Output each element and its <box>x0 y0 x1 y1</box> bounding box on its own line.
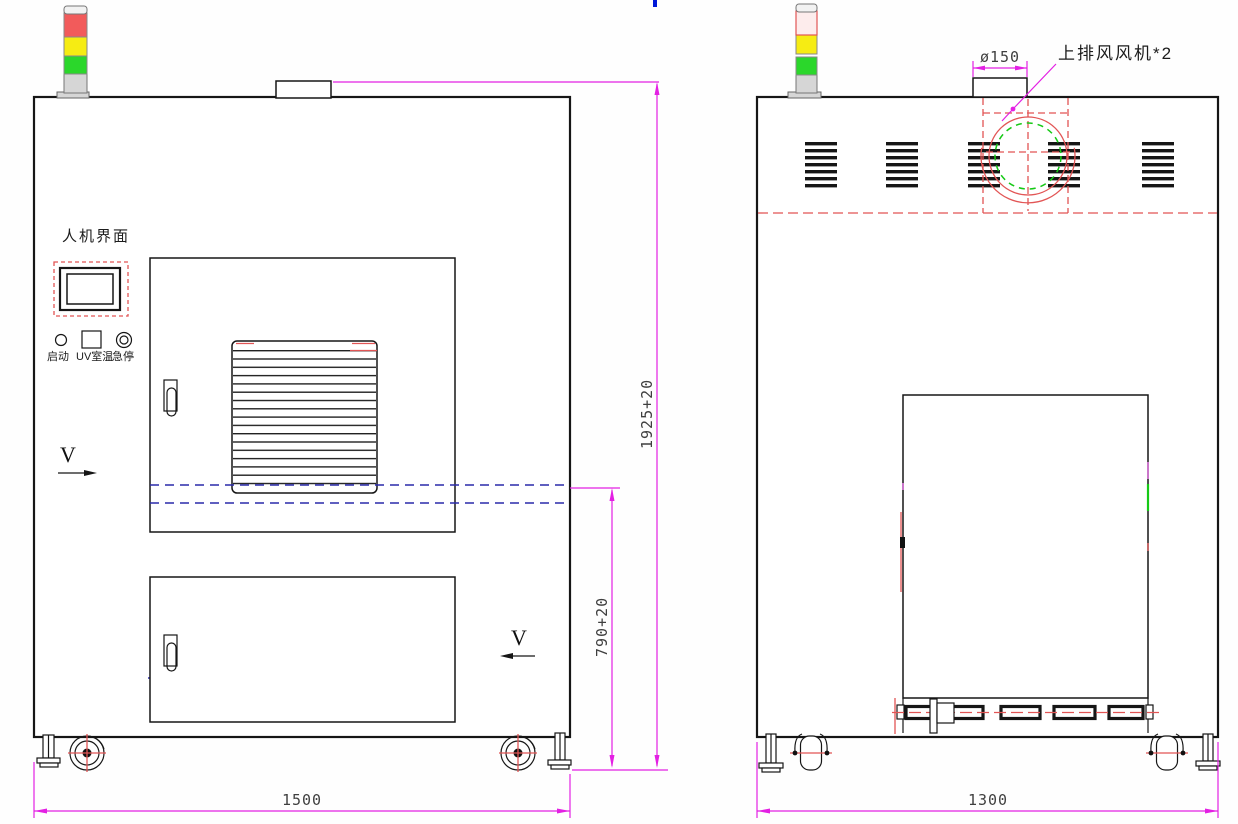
hmi-label: 人机界面 <box>62 229 130 246</box>
section-mark-left: V <box>60 443 76 467</box>
dim-fan-diameter: ø150 <box>973 49 1027 66</box>
blue-mark <box>653 0 657 7</box>
side-view <box>757 4 1220 818</box>
side-door <box>903 395 1148 698</box>
exhaust-duct <box>973 78 1027 97</box>
section-mark-right: V <box>511 626 527 650</box>
stack-light-yellow <box>64 37 87 56</box>
caster-wheel-icon <box>1146 734 1188 770</box>
dim-total-height: 1925+20 <box>639 379 656 449</box>
leveling-foot-icon <box>37 735 60 767</box>
rail-bracket <box>930 699 937 733</box>
uv-temp-button-label: UV室温 <box>76 351 113 363</box>
front-view <box>34 6 668 818</box>
caster-wheel-icon <box>499 734 537 772</box>
stack-light-red <box>64 13 87 37</box>
rail-block <box>937 703 954 723</box>
stack-light-green <box>64 56 87 74</box>
drawing-linework <box>0 0 1238 824</box>
caster-wheel-icon <box>790 734 832 770</box>
dim-side-depth: 1300 <box>928 792 1048 809</box>
leveling-foot-icon <box>1196 734 1220 770</box>
dim-front-width: 1500 <box>242 792 362 809</box>
leveling-foot-icon <box>759 734 783 772</box>
top-duct-front <box>276 81 331 98</box>
fan-callout-label: 上排风风机*2 <box>1058 45 1173 64</box>
leveling-foot-icon <box>548 733 571 769</box>
start-button-label: 启动 <box>47 351 69 363</box>
door-latch <box>900 537 905 548</box>
lower-door <box>150 577 455 722</box>
engineering-drawing: 人机界面 启动 UV室温 急停 V V 1500 1925+20 790+20 … <box>0 0 1238 824</box>
caster-wheel-icon <box>68 734 106 772</box>
louver-vent-panel <box>232 341 377 493</box>
stack-light-icon <box>788 4 821 98</box>
stack-light-icon <box>57 6 89 98</box>
estop-button-label: 急停 <box>112 351 134 363</box>
dim-work-height: 790+20 <box>594 597 611 657</box>
